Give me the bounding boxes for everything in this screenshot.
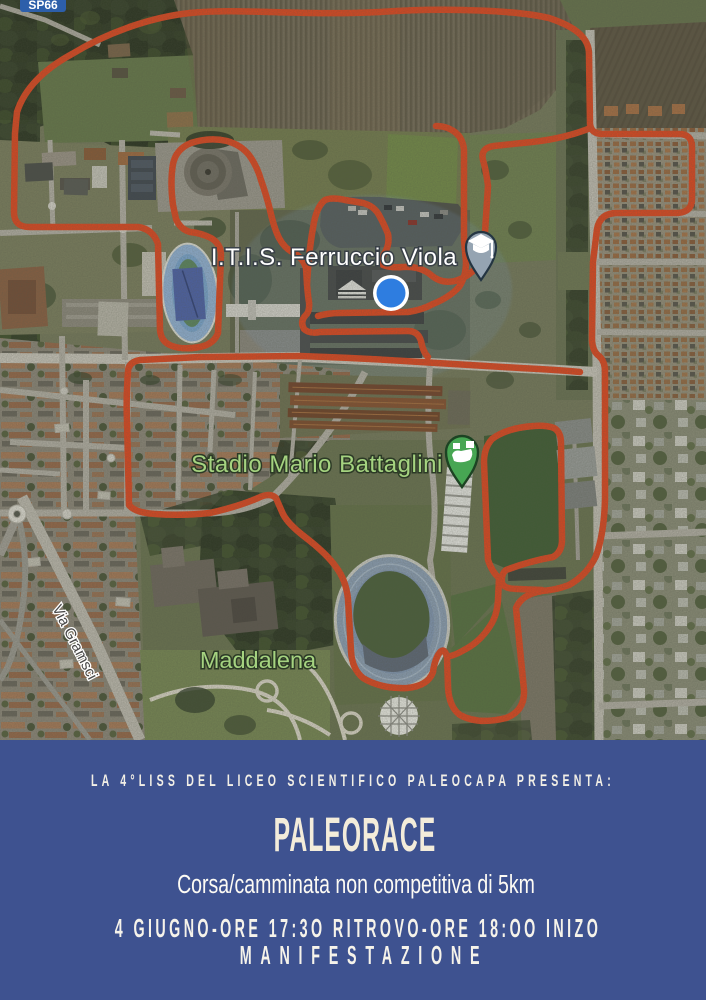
svg-text:Maddalena: Maddalena [200,647,317,673]
svg-text:SP66: SP66 [28,0,58,12]
svg-text:Stadio Mario Battaglini: Stadio Mario Battaglini [191,451,443,478]
svg-text:I.T.I.S. Ferruccio Viola: I.T.I.S. Ferruccio Viola [211,244,457,271]
